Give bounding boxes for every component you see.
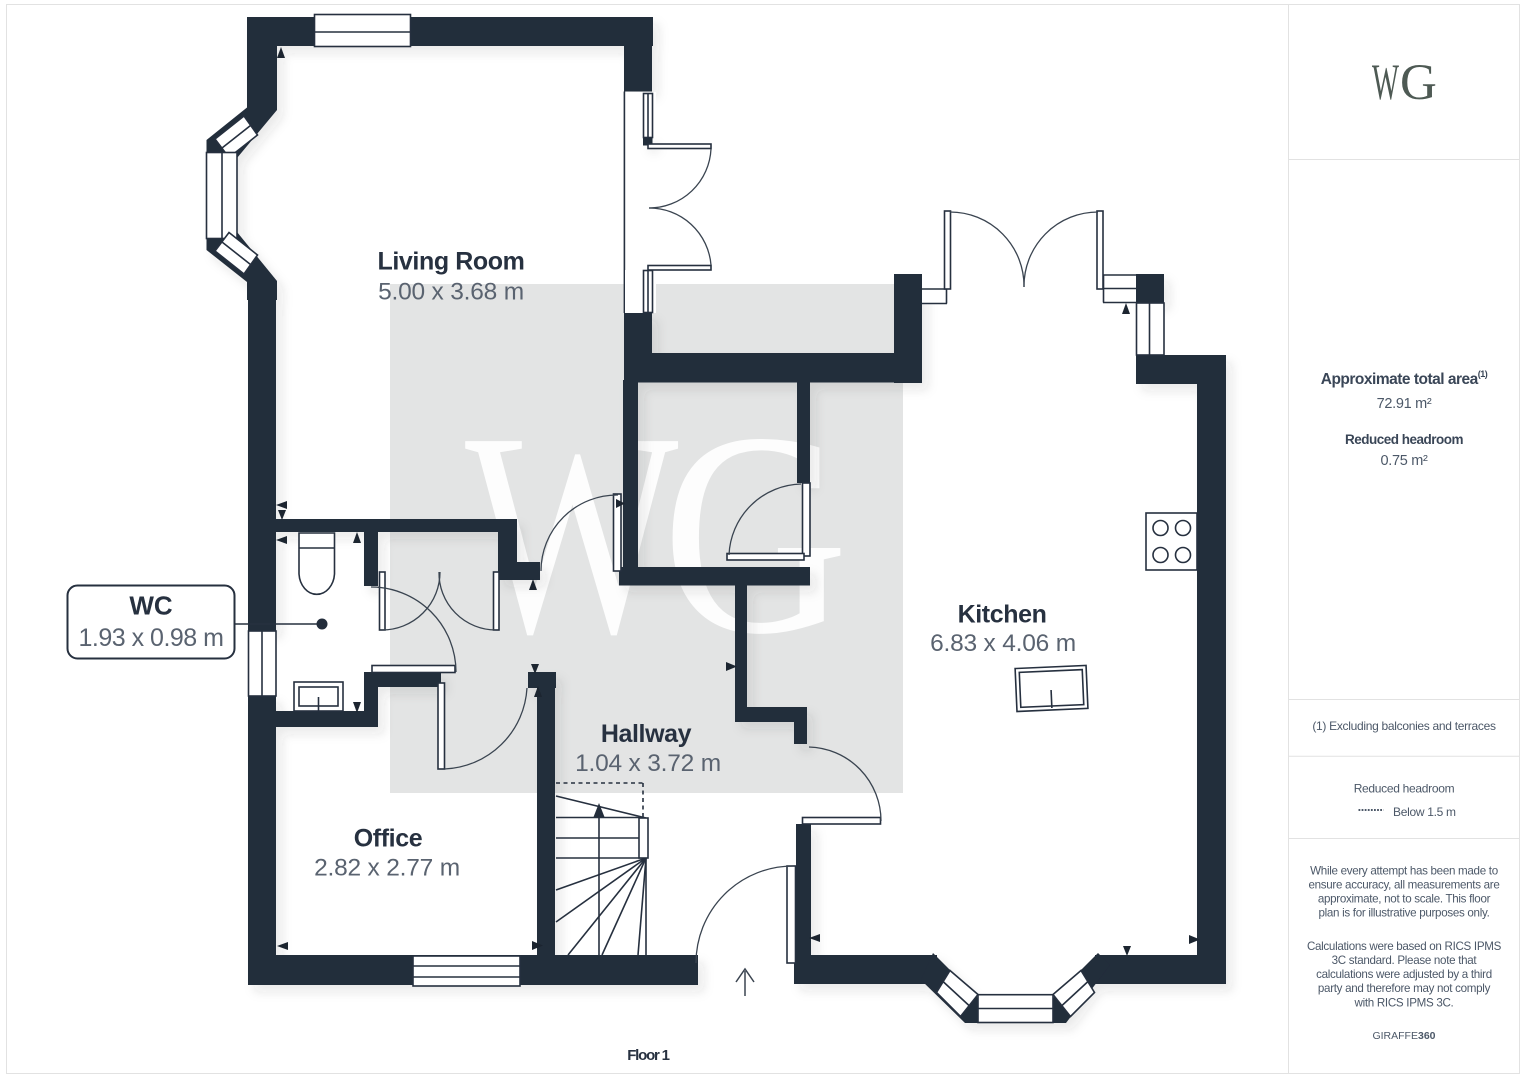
svg-text:Kitchen: Kitchen [958,601,1047,629]
svg-text:party and therefore may not co: party and therefore may not comply [1318,982,1491,995]
svg-text:Approximate total area(1): Approximate total area(1) [1321,369,1488,388]
svg-text:Hallway: Hallway [601,720,692,748]
svg-text:6.83 x 4.06 m: 6.83 x 4.06 m [930,630,1076,657]
svg-text:While every attempt has been m: While every attempt has been made to [1310,864,1498,877]
svg-text:Calculations were based on RIC: Calculations were based on RICS IPMS [1307,940,1502,953]
svg-text:W: W [465,373,681,694]
svg-text:Floor 1: Floor 1 [627,1047,669,1064]
svg-text:calculations were adjusted by: calculations were adjusted by a third [1316,968,1492,981]
svg-text:Office: Office [354,825,423,853]
svg-text:72.91 m²: 72.91 m² [1377,396,1432,412]
svg-text:5.00 x 3.68 m: 5.00 x 3.68 m [378,279,524,306]
svg-text:2.82 x 2.77 m: 2.82 x 2.77 m [314,855,460,882]
svg-text:Reduced headroom: Reduced headroom [1345,432,1464,447]
svg-text:G: G [1400,55,1437,111]
svg-text:1.93 x 0.98 m: 1.93 x 0.98 m [79,624,224,652]
svg-text:G: G [662,373,848,694]
svg-text:Living Room: Living Room [378,248,525,276]
svg-text:0.75 m²: 0.75 m² [1380,453,1428,469]
svg-text:plan is for illustrative purpo: plan is for illustrative purposes only. [1318,907,1489,920]
svg-text:Below 1.5 m: Below 1.5 m [1393,805,1456,819]
svg-text:GIRAFFE360: GIRAFFE360 [1372,1030,1435,1042]
svg-text:1.04 x 3.72 m: 1.04 x 3.72 m [575,750,721,777]
svg-text:3C standard. Please note that: 3C standard. Please note that [1332,954,1478,967]
svg-text:WC: WC [129,591,173,621]
svg-text:Reduced headroom: Reduced headroom [1354,782,1455,796]
svg-text:with RICS IPMS 3C.: with RICS IPMS 3C. [1354,996,1454,1009]
svg-text:approximate, not to scale. Thi: approximate, not to scale. This floor [1318,893,1491,906]
svg-text:ensure accuracy, all measureme: ensure accuracy, all measurements are [1308,878,1499,891]
svg-text:(1) Excluding balconies and te: (1) Excluding balconies and terraces [1312,719,1496,733]
svg-text:W: W [1372,53,1399,110]
